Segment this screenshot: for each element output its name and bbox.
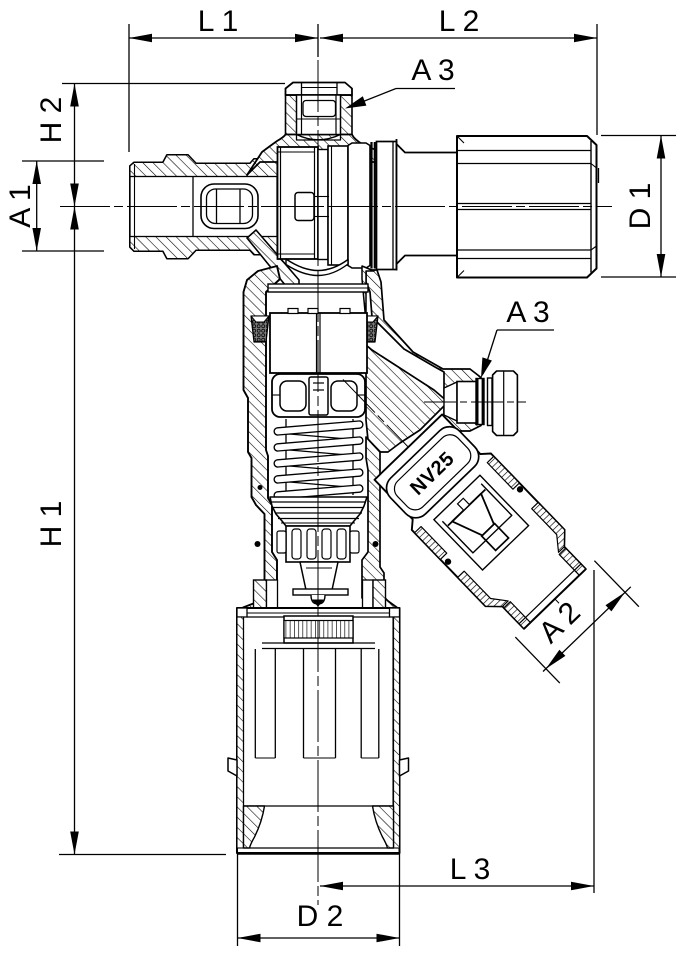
svg-text:L 3: L 3 [450, 853, 491, 886]
svg-text:L 2: L 2 [439, 5, 480, 38]
svg-text:H 1: H 1 [35, 501, 68, 548]
svg-text:D 1: D 1 [624, 183, 657, 230]
svg-text:L 1: L 1 [198, 5, 239, 38]
svg-text:D 2: D 2 [297, 900, 344, 933]
svg-text:A 1: A 1 [4, 184, 37, 227]
svg-text:H 2: H 2 [35, 97, 68, 144]
svg-text:A 3: A 3 [506, 296, 549, 329]
svg-text:A 3: A 3 [411, 54, 454, 87]
